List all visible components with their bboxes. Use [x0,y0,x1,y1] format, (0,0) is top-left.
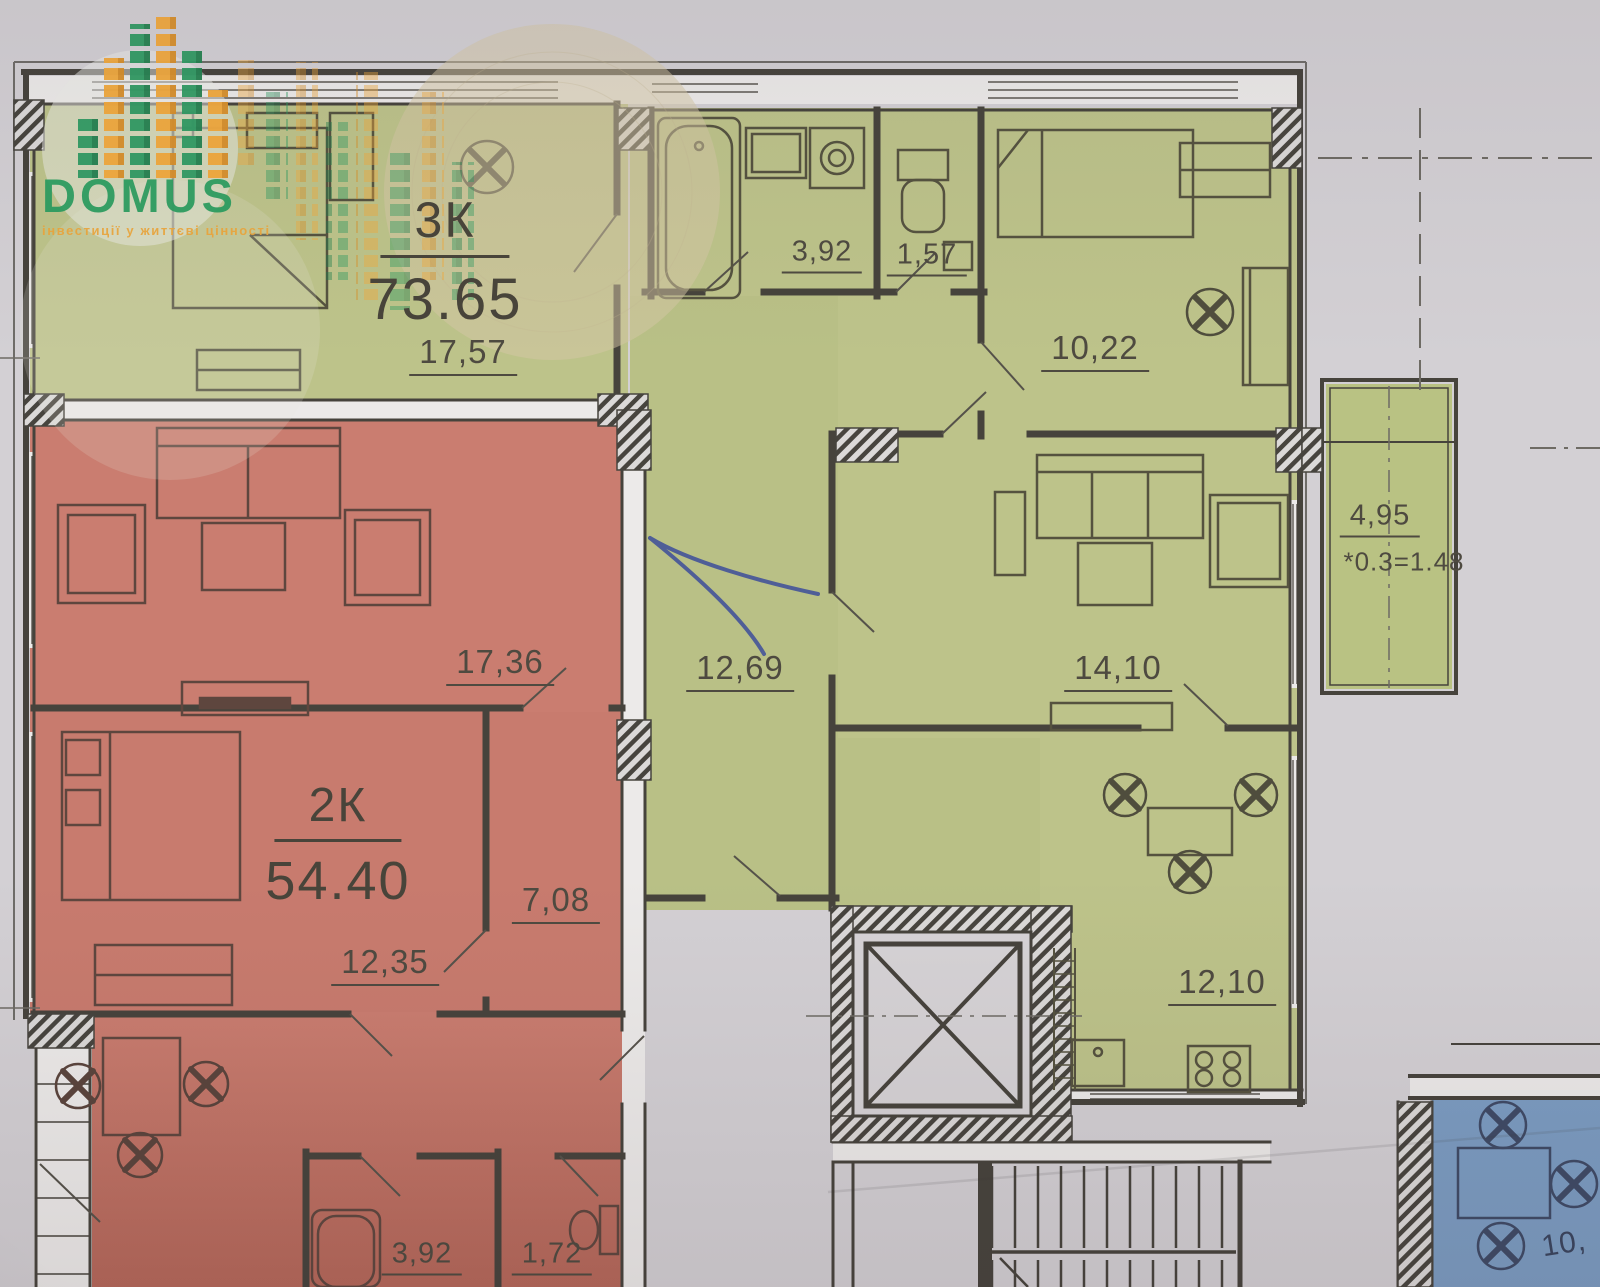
area-label-blue-partial: 10, [1539,1224,1588,1265]
apartment-2k-type: 2К [275,778,402,842]
domus-tagline-text: інвестиції у життєві цінності [42,223,271,238]
area-label-wc-3k: 1,57 [887,239,967,272]
area-label-wc-2k: 1,72 [512,1238,592,1271]
domus-logo: DOMUS інвестиції у життєві цінності [42,172,271,238]
apartment-2k-label: 2К 54.40 [265,778,410,912]
balcony-coefficient-note: *0.3=1.48 [1343,547,1464,578]
apartment-3k-total-area: 73.65 [367,258,522,333]
floor-plan-photo: 3К 73.65 17,57 3,92 1,57 10,22 12,69 14,… [0,0,1600,1287]
elevator-icon [866,944,1020,1106]
area-label-hall: 12,69 [686,649,794,687]
area-label-balcony: 4,95 [1340,500,1420,533]
elevator-shaft [831,906,1072,1142]
domus-brand-text: DOMUS [42,172,271,219]
apartment-2k-total-area: 54.40 [265,842,410,912]
area-label-bathroom-3k: 3,92 [782,236,862,269]
area-label-bedroom-2k: 12,35 [331,943,439,981]
area-label-bedroom-1: 17,57 [409,333,517,371]
area-label-living-3k: 14,10 [1064,649,1172,687]
area-label-corridor-2k: 7,08 [512,881,600,919]
area-label-kitchen-3k: 12,10 [1168,963,1276,1001]
area-label-bedroom-2: 10,22 [1041,329,1149,367]
area-label-living-2k: 17,36 [446,643,554,681]
apartment-3k-type: 3К [381,191,510,258]
apartment-3k-label: 3К 73.65 [367,191,522,333]
area-label-bathroom-2k: 3,92 [382,1238,462,1271]
